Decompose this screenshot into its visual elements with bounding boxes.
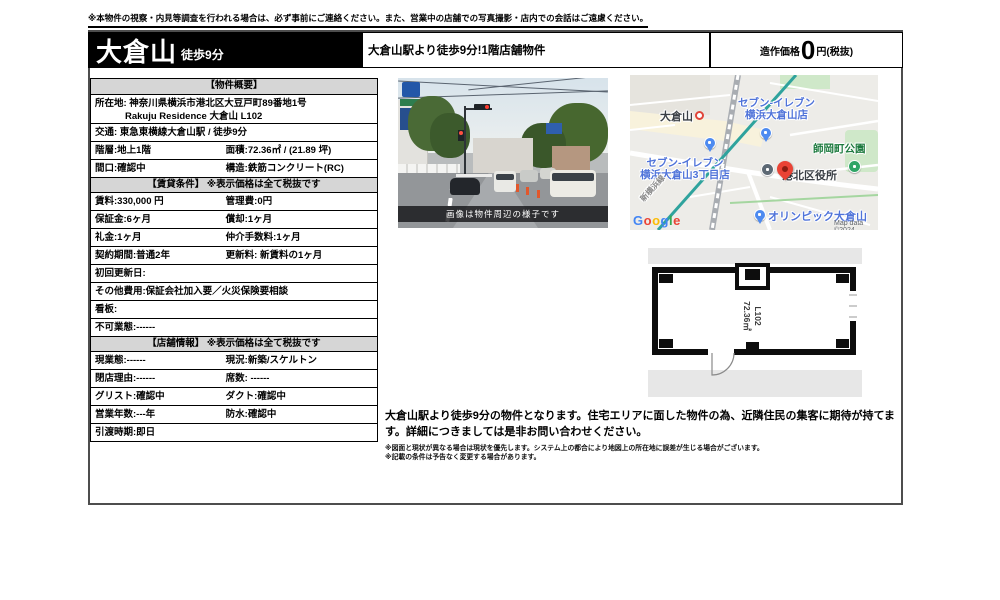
map-seven-eleven-1-label: セブン-イレブン 横浜大倉山店 (738, 97, 815, 121)
photo-traffic-cone (537, 190, 540, 198)
photo-ped-signal (458, 130, 464, 141)
table-row-handover: 引渡時期:即日 (91, 423, 377, 441)
flyer-page: ※本物件の視察・内見等調査を行われる場合は、必ず事前にご連絡ください。また、営業… (0, 0, 1000, 600)
map-label-line: 横浜大倉山店 (738, 109, 815, 121)
photo-road-sign-icon (402, 82, 420, 97)
photo-building-center (473, 138, 533, 173)
title-banner: 大倉山 徒歩9分 (88, 32, 362, 68)
photo-blue-sign-center (546, 123, 562, 134)
table-row-other-costs: その他費用:保証会社加入要／火災保険要相談 (91, 282, 377, 300)
cell-seats: 席数: ------ (226, 370, 270, 387)
photo-car-silver (520, 170, 538, 182)
photo-van-window (552, 173, 594, 181)
photo-ped-red-light (459, 131, 463, 135)
cell-rent: 賃料:330,000 円 (95, 193, 226, 210)
section-header-lease: 【賃貸条件】 ※表示価格は全て税抜です (91, 177, 377, 192)
table-row-first-renewal: 初回更新日: (91, 264, 377, 282)
property-table: 【物件概要】 所在地: 神奈川県横浜市港北区大豆戸町89番地1号 Rakuju … (90, 78, 378, 442)
cell-mgmt-fee: 管理費:0円 (226, 193, 272, 210)
cell-current-business: 現業態:------ (95, 352, 226, 369)
header-subtitle-cell: 大倉山駅より徒歩9分!1階店舗物件 (362, 32, 710, 68)
photo-van-window (496, 174, 514, 180)
photo-stop-line (456, 174, 492, 177)
fine-print-note: ※記載の条件は予告なく変更する場合があります。 (385, 451, 540, 461)
price-value: 0 (801, 37, 815, 63)
logo-letter: G (633, 213, 644, 228)
floor-plan-drawing: L102 72.36㎡ (648, 243, 862, 400)
header-price-cell: 造作価格 0 円(税抜) (710, 32, 903, 68)
convenience-store-pin-icon (704, 137, 716, 149)
cell-floor: 階層:地上1階 (95, 142, 226, 159)
map-label-line: 横浜大倉山3丁目店 (630, 169, 740, 181)
table-row-access: 交通: 東急東横線大倉山駅 / 徒歩9分 (91, 123, 377, 141)
google-logo: Google (633, 213, 681, 228)
cell-contract-term: 契約期間:普通2年 (95, 247, 226, 264)
map-copyright: Map data ©2024 (834, 220, 878, 230)
park-icon (848, 160, 861, 173)
cell-condition: 現況:新築/スケルトン (226, 352, 317, 369)
photo-traffic-light (474, 104, 490, 110)
plan-area-value: 72.36㎡ (742, 301, 752, 331)
photo-red-light (485, 105, 489, 109)
convenience-store-pin-icon (760, 127, 772, 139)
cell-brokerage: 仲介手数料:1ヶ月 (226, 229, 301, 246)
table-row-keymoney: 礼金:1ヶ月仲介手数料:1ヶ月 (91, 228, 377, 246)
section-header-outline: 【物件概要】 (91, 79, 377, 94)
cell-amortization: 償却:1ヶ月 (226, 211, 272, 228)
street-photo: 画像は物件周辺の様子です (398, 78, 608, 228)
plan-unit-number: L102 (753, 306, 763, 326)
header-subtitle: 大倉山駅より徒歩9分!1階店舗物件 (368, 42, 545, 58)
photo-traffic-cone (526, 187, 529, 195)
cell-renewal-fee: 更新料: 新賃料の1ヶ月 (226, 247, 323, 264)
table-row-prohibited: 不可業態:------ (91, 318, 377, 336)
table-row-current-business: 現業態:------現況:新築/スケルトン (91, 351, 377, 369)
logo-letter: e (673, 213, 681, 228)
shopping-pin-icon (754, 209, 766, 221)
cell-structure: 構造:鉄筋コンクリート(RC) (226, 160, 344, 177)
photo-traffic-cone (516, 184, 519, 192)
table-row-frontage-structure: 間口:確認中構造:鉄筋コンクリート(RC) (91, 159, 377, 177)
table-row-contract: 契約期間:普通2年更新料: 新賃料の1ヶ月 (91, 246, 377, 264)
cell-key-money: 礼金:1ヶ月 (95, 229, 226, 246)
cell-area: 面積:72.36㎡ / (21.89 坪) (226, 142, 332, 159)
map-park-label: 師岡町公園 (813, 141, 866, 156)
logo-letter: g (661, 213, 669, 228)
page-title: 大倉山 (96, 32, 177, 69)
table-row-floor-area: 階層:地上1階面積:72.36㎡ / (21.89 坪) (91, 141, 377, 159)
floor-plan: L102 72.36㎡ (648, 243, 862, 400)
train-station-icon (695, 111, 704, 120)
address-line1: 所在地: 神奈川県横浜市港北区大豆戸町89番地1号 (95, 98, 307, 109)
cell-business-years: 営業年数:---年 (95, 406, 226, 423)
logo-letter: o (652, 213, 660, 228)
ward-office-icon (761, 163, 774, 176)
cell-duct: ダクト:確認中 (226, 388, 286, 405)
photo-guardrail (398, 164, 460, 173)
table-row-address: 所在地: 神奈川県横浜市港北区大豆戸町89番地1号 Rakuju Residen… (91, 94, 377, 123)
photo-car-dark (450, 178, 480, 195)
price-unit: 円(税抜) (816, 43, 853, 58)
map-label-line: セブン-イレブン (738, 97, 815, 109)
property-description: 大倉山駅より徒歩9分の物件となります。住宅エリアに面した物件の為、近隣住民の集客… (385, 408, 897, 440)
cell-grease-trap: グリスト:確認中 (95, 388, 226, 405)
table-row-rent: 賃料:330,000 円管理費:0円 (91, 192, 377, 210)
table-row-deposit: 保証金:6ヶ月償却:1ヶ月 (91, 210, 377, 228)
cell-waterproof: 防水:確認中 (226, 406, 277, 423)
map-label-line: セブン-イレブン (630, 157, 740, 169)
logo-letter: o (644, 213, 652, 228)
table-row-grease-duct: グリスト:確認中ダクト:確認中 (91, 387, 377, 405)
map-station-label: 大倉山 (660, 108, 693, 124)
table-row-signboard: 看板: (91, 300, 377, 318)
cell-deposit: 保証金:6ヶ月 (95, 211, 226, 228)
photo-signal-pole (464, 106, 466, 174)
table-row-close-reason: 閉店理由:------席数: ------ (91, 369, 377, 387)
address-line2: Rakuju Residence 大倉山 L102 (95, 110, 373, 123)
photo-van-center (494, 171, 516, 192)
top-disclaimer: ※本物件の視察・内見等調査を行われる場合は、必ず事前にご連絡ください。また、営業… (88, 12, 648, 28)
photo-van-right (550, 170, 596, 197)
cell-close-reason: 閉店理由:------ (95, 370, 226, 387)
section-header-shop-info: 【店舗情報】 ※表示価格は全て税抜です (91, 336, 377, 351)
price-label: 造作価格 (760, 43, 800, 58)
title-walk-time: 徒歩9分 (181, 46, 224, 63)
cell-frontage: 間口:確認中 (95, 160, 226, 177)
location-map: 大倉山 セブン-イレブン 横浜大倉山店 セブン-イレブン 横浜大倉山3丁目店 港… (630, 75, 878, 230)
map-seven-eleven-2-label: セブン-イレブン 横浜大倉山3丁目店 (630, 157, 740, 181)
table-row-years-waterproof: 営業年数:---年防水:確認中 (91, 405, 377, 423)
photo-caption: 画像は物件周辺の様子です (398, 206, 608, 222)
